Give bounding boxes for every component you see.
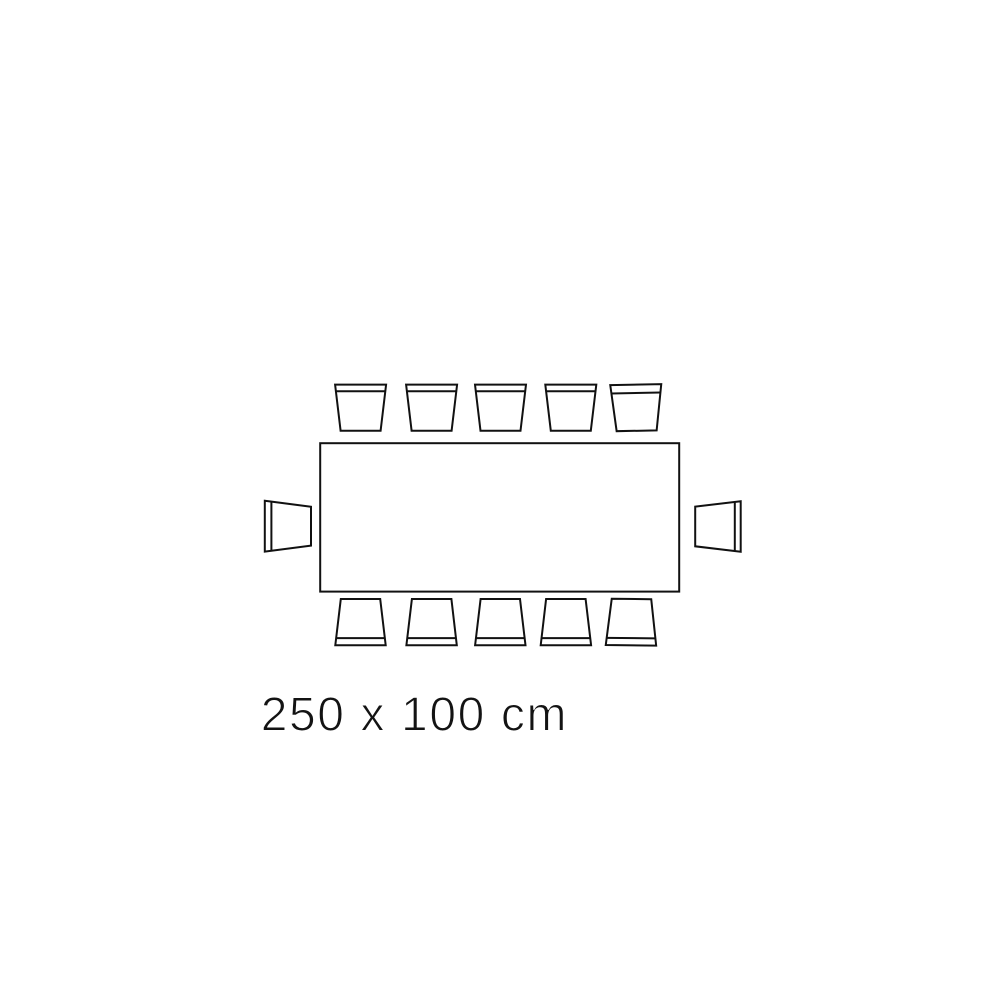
svg-text:250 x 100 cm: 250 x 100 cm — [261, 689, 568, 742]
